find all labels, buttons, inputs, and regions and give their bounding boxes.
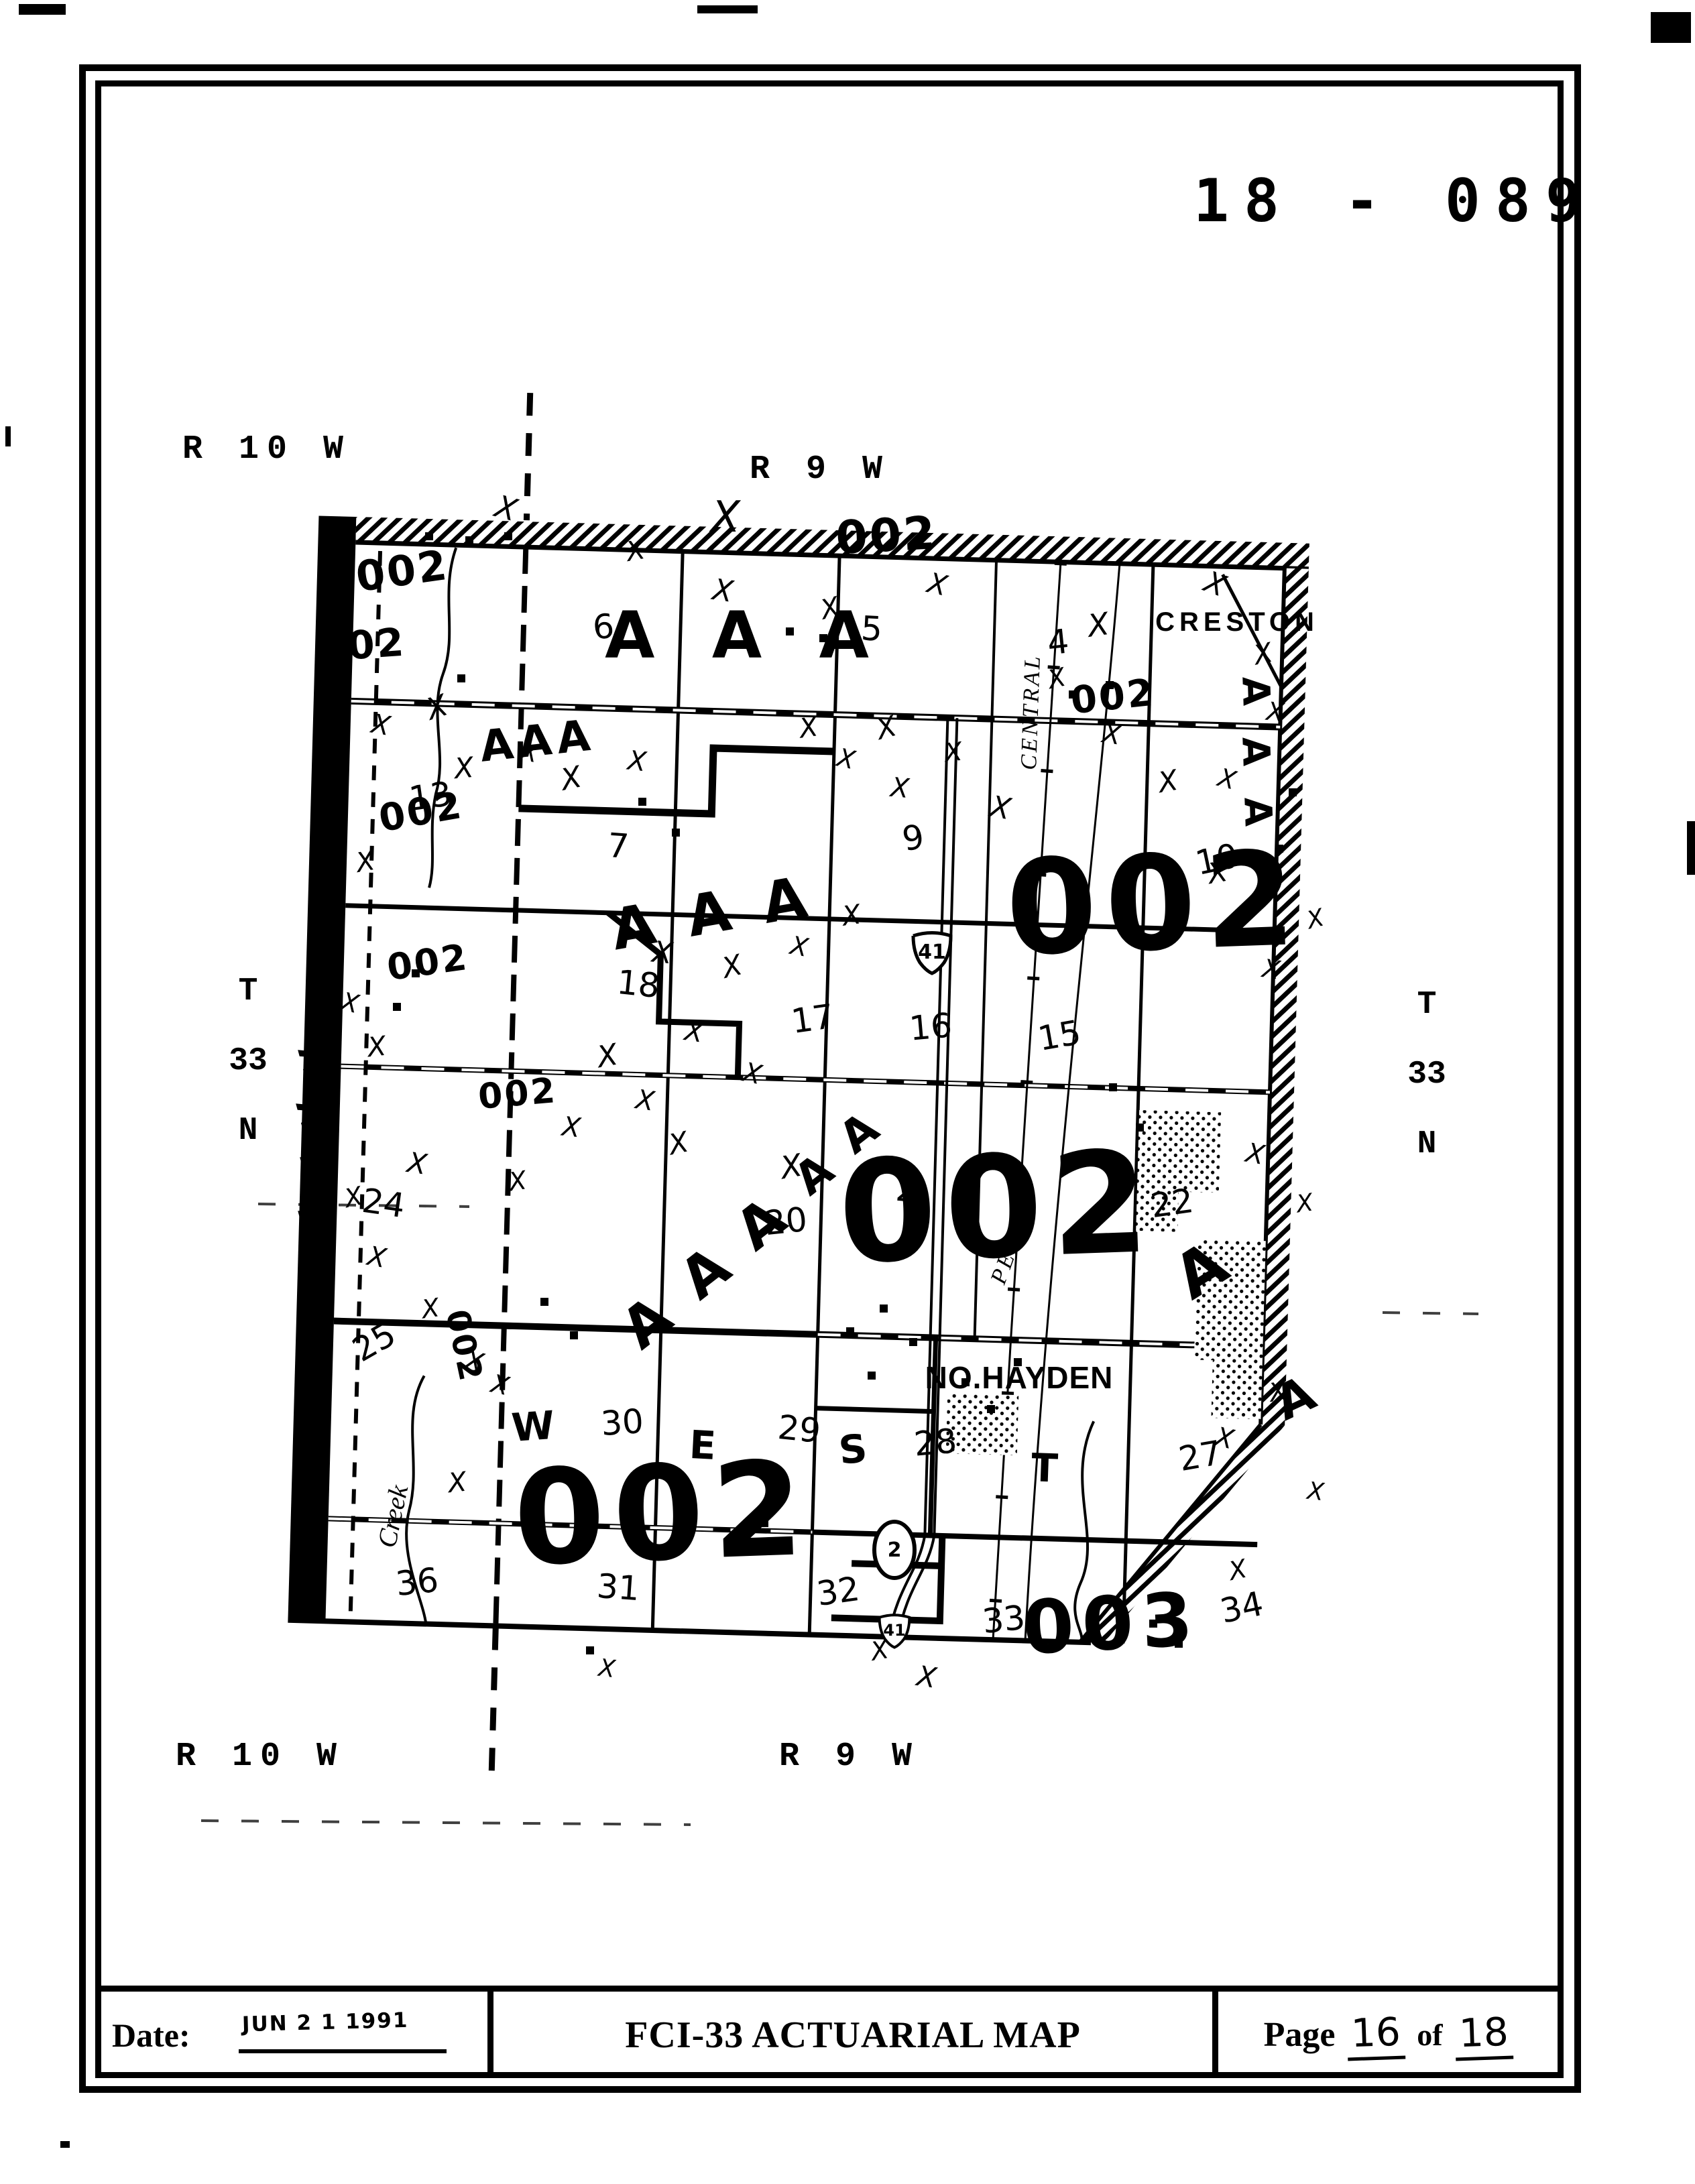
section-number: 17 bbox=[789, 999, 836, 1038]
building-dot bbox=[1014, 1358, 1022, 1366]
creek-name: Creek bbox=[373, 1483, 413, 1550]
x-mark: X bbox=[1101, 720, 1123, 749]
x-mark: X bbox=[369, 711, 392, 740]
x-mark: X bbox=[719, 951, 745, 983]
building-dot bbox=[961, 1378, 970, 1386]
x-mark: X bbox=[988, 792, 1012, 825]
x-mark: X bbox=[1244, 1140, 1267, 1169]
building-dot bbox=[909, 1338, 917, 1346]
x-mark: X bbox=[1156, 766, 1180, 797]
section-number: 18 bbox=[616, 965, 662, 1003]
title-cell: FCI-33 ACTUARIAL MAP bbox=[487, 1992, 1218, 2078]
us-highway-41-shield-icon: 41 bbox=[877, 1611, 913, 1650]
risk-class-label: A bbox=[726, 1187, 797, 1259]
x-mark: X bbox=[1045, 664, 1067, 693]
x-mark: X bbox=[666, 1128, 691, 1159]
page-total: 18 bbox=[1454, 2009, 1513, 2061]
building-dot bbox=[586, 1646, 594, 1654]
x-mark: X bbox=[841, 901, 863, 930]
x-mark: X bbox=[740, 1059, 764, 1089]
x-mark: X bbox=[423, 690, 451, 725]
building-dot bbox=[1109, 1083, 1117, 1091]
highway-shield-number: 41 bbox=[877, 1611, 913, 1650]
x-mark: X bbox=[1305, 906, 1327, 934]
zone-code-label: 002 bbox=[317, 623, 407, 668]
building-dot bbox=[880, 1305, 888, 1313]
zone-code-label: 003 bbox=[1020, 1582, 1202, 1665]
map-annotations: 6541379101817161524202222530292827363132… bbox=[0, 0, 1695, 2184]
x-mark: X bbox=[507, 1167, 528, 1195]
scan-artifact bbox=[1687, 821, 1695, 875]
x-mark: X bbox=[354, 847, 377, 877]
building-dot bbox=[987, 1405, 995, 1413]
page-label: Page bbox=[1264, 2015, 1336, 2055]
risk-class-label: A bbox=[292, 1042, 333, 1079]
x-mark: X bbox=[1265, 699, 1285, 726]
railroad-name: CENTRAL bbox=[1018, 654, 1045, 771]
x-mark: X bbox=[1261, 955, 1281, 983]
x-mark: X bbox=[798, 713, 820, 742]
x-mark: X bbox=[595, 1040, 620, 1073]
scan-artifact bbox=[1651, 12, 1691, 43]
risk-class-label: A bbox=[294, 1150, 335, 1186]
building-dot bbox=[782, 1539, 790, 1547]
building-dot bbox=[760, 1519, 768, 1527]
hand-letter: S bbox=[837, 1429, 869, 1470]
risk-class-label: A A A bbox=[607, 867, 817, 958]
zone-code-label: 002 bbox=[477, 1073, 559, 1115]
x-mark: X bbox=[492, 491, 520, 526]
risk-class-label: A bbox=[1238, 796, 1277, 828]
town-name: NO.HAYDEN bbox=[925, 1362, 1114, 1393]
zone-code-label: 002 bbox=[1004, 833, 1305, 974]
us-highway-41-shield-icon: 41 bbox=[910, 928, 954, 976]
building-dot bbox=[1175, 1640, 1183, 1648]
zone-code-label: 002 bbox=[376, 786, 466, 838]
building-dot bbox=[1069, 690, 1077, 699]
section-number: 4 bbox=[1046, 624, 1071, 660]
state-route-2-circle-icon: 2 bbox=[869, 1518, 920, 1582]
section-number: 28 bbox=[913, 1424, 958, 1461]
x-mark: X bbox=[339, 989, 361, 1018]
zone-code-label: 002 bbox=[835, 511, 938, 562]
building-dot bbox=[570, 1331, 578, 1339]
x-mark: X bbox=[406, 1148, 428, 1179]
building-dot bbox=[1136, 1124, 1144, 1132]
building-dot bbox=[846, 1327, 854, 1335]
x-mark: X bbox=[1226, 1556, 1248, 1585]
hand-letter: W bbox=[510, 1406, 556, 1447]
x-mark: X bbox=[559, 762, 585, 795]
x-mark: X bbox=[1295, 1191, 1314, 1217]
x-mark: X bbox=[634, 1086, 656, 1115]
x-mark: X bbox=[1200, 567, 1229, 602]
section-number: 7 bbox=[606, 829, 630, 863]
building-dot bbox=[819, 634, 827, 642]
x-mark: X bbox=[890, 774, 911, 802]
risk-class-label: A bbox=[670, 1236, 741, 1308]
date-underline bbox=[239, 2049, 447, 2053]
x-mark: X bbox=[874, 712, 900, 744]
x-mark: X bbox=[624, 536, 647, 566]
section-number: 30 bbox=[600, 1404, 645, 1441]
x-mark: X bbox=[651, 938, 675, 969]
page-cell: Page 16 of 18 bbox=[1218, 1992, 1558, 2078]
section-number: 15 bbox=[1035, 1016, 1083, 1056]
x-mark: X bbox=[489, 1371, 511, 1400]
risk-class-label: A A A bbox=[605, 603, 886, 668]
page-number: 16 bbox=[1346, 2009, 1405, 2061]
x-mark: X bbox=[342, 1183, 364, 1212]
x-mark: X bbox=[1212, 1424, 1236, 1454]
building-dot bbox=[868, 1372, 876, 1380]
x-mark: X bbox=[1216, 764, 1238, 793]
building-dot bbox=[672, 829, 680, 837]
date-stamp: JUN 2 1 1991 bbox=[242, 2008, 409, 2037]
x-mark: X bbox=[711, 575, 735, 607]
risk-class-label: A bbox=[292, 1203, 333, 1239]
x-mark: X bbox=[420, 1294, 441, 1322]
scanned-actuarial-map-page: 18 - 089 R 10 W R 9 W R 10 W R 9 W T 33 … bbox=[0, 0, 1695, 2184]
hand-letter: E bbox=[689, 1425, 717, 1465]
building-dot bbox=[504, 532, 512, 540]
title-block: Date: JUN 2 1 1991 FCI-33 ACTUARIAL MAP … bbox=[101, 1986, 1558, 2078]
risk-class-label: A bbox=[612, 1286, 683, 1357]
section-number: 33 bbox=[981, 1601, 1027, 1638]
section-number: 36 bbox=[394, 1563, 441, 1601]
building-dot bbox=[393, 1003, 401, 1011]
date-label: Date: bbox=[112, 2016, 190, 2055]
building-dot bbox=[1289, 788, 1297, 796]
building-dot bbox=[638, 798, 646, 806]
x-mark: X bbox=[1251, 640, 1275, 670]
x-mark: X bbox=[1306, 1479, 1325, 1505]
building-dot bbox=[1106, 681, 1114, 689]
x-mark: X bbox=[626, 747, 647, 776]
x-mark: X bbox=[447, 1469, 467, 1498]
x-mark: X bbox=[788, 932, 810, 961]
risk-class-label: A bbox=[1236, 736, 1275, 768]
scan-artifact bbox=[5, 426, 11, 446]
date-cell: Date: JUN 2 1 1991 bbox=[101, 1992, 487, 2078]
document-title: FCI-33 ACTUARIAL MAP bbox=[625, 2014, 1081, 2057]
section-number: 16 bbox=[908, 1008, 953, 1045]
scan-artifact bbox=[19, 4, 66, 15]
scan-artifact bbox=[697, 5, 758, 13]
hand-letter: T bbox=[1031, 1448, 1059, 1488]
section-number: 32 bbox=[815, 1572, 862, 1611]
of-label: of bbox=[1417, 2017, 1442, 2053]
highway-shield-number: 2 bbox=[869, 1518, 920, 1582]
x-mark: X bbox=[366, 1033, 387, 1062]
building-dot bbox=[1275, 845, 1283, 853]
x-mark: X bbox=[835, 745, 857, 774]
building-dot bbox=[465, 536, 473, 544]
x-mark: X bbox=[561, 1113, 581, 1142]
x-mark: X bbox=[943, 739, 963, 766]
building-dot bbox=[412, 969, 420, 977]
x-mark: X bbox=[365, 1243, 388, 1272]
x-mark: X bbox=[453, 753, 475, 783]
highway-shield-number: 41 bbox=[910, 928, 954, 976]
x-mark: X bbox=[925, 568, 950, 600]
scan-artifact bbox=[60, 2141, 70, 2148]
risk-class-label: A bbox=[1165, 1231, 1239, 1310]
zone-code-label: 002 bbox=[385, 939, 471, 986]
section-number: 25 bbox=[347, 1317, 401, 1367]
town-name: CRESTON bbox=[1155, 609, 1319, 635]
section-number: 9 bbox=[900, 820, 927, 857]
x-mark: X bbox=[711, 496, 740, 539]
x-mark: X bbox=[683, 1018, 705, 1046]
building-dot bbox=[1149, 1620, 1157, 1628]
building-dot bbox=[786, 627, 794, 635]
zone-code-label: 002 bbox=[353, 544, 451, 599]
building-dot bbox=[540, 1298, 548, 1306]
x-mark: X bbox=[915, 1662, 938, 1693]
x-mark: X bbox=[1086, 608, 1111, 642]
x-mark: X bbox=[597, 1656, 616, 1682]
zone-code-label: 002 bbox=[512, 1443, 813, 1584]
building-dot bbox=[425, 532, 433, 540]
risk-class-label: A bbox=[290, 1096, 331, 1132]
section-number: 34 bbox=[1218, 1587, 1267, 1628]
building-dot bbox=[457, 674, 465, 682]
section-number: 24 bbox=[360, 1184, 407, 1223]
